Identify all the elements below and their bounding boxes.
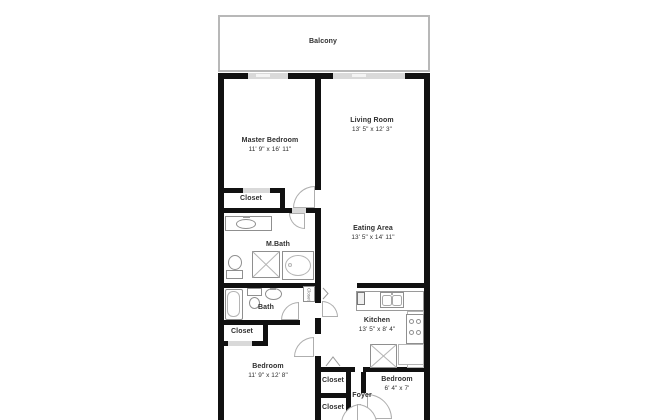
room-label-living-room: Living Room 13' 5" x 12' 3" xyxy=(317,117,427,134)
door-arc xyxy=(293,186,315,208)
sink-basin xyxy=(236,219,256,229)
door-arc xyxy=(322,301,338,317)
room-label-bath: Bath xyxy=(240,304,292,312)
room-dims: 11' 9" x 16' 11" xyxy=(215,146,325,154)
closet-label-master: Closet xyxy=(221,195,281,203)
room-label-eating-area: Eating Area 13' 5" x 14' 11" xyxy=(318,225,428,242)
closet-label-bath: Closet xyxy=(219,328,265,336)
room-name: Bedroom xyxy=(252,363,283,370)
closet-label-hall-upper: Closet xyxy=(315,377,351,385)
room-label-bedroom: Bedroom 11' 9" x 12' 8" xyxy=(213,363,323,380)
room-dims: 13' 5" x 12' 3" xyxy=(317,126,427,134)
dishwasher-icon xyxy=(357,292,365,305)
wall xyxy=(357,283,424,288)
bifold-door-icon xyxy=(325,356,341,367)
wall xyxy=(306,208,321,213)
toilet-tank xyxy=(226,270,243,279)
room-dims: 13' 5" x 14' 11" xyxy=(318,234,428,242)
burner-icon xyxy=(416,319,421,324)
sliding-door-panel xyxy=(352,74,366,77)
room-name: Eating Area xyxy=(353,225,393,232)
door-arc xyxy=(289,213,305,229)
balcony-label: Balcony xyxy=(268,38,378,46)
bathtub-basin xyxy=(227,291,240,317)
cabinet xyxy=(398,344,424,365)
wall xyxy=(315,318,321,334)
faucet-icon xyxy=(270,288,276,290)
wall xyxy=(218,320,300,325)
faucet-icon xyxy=(243,216,250,218)
wall xyxy=(252,341,268,346)
room-label-kitchen: Kitchen 13' 5" x 8' 4" xyxy=(342,317,412,334)
wall xyxy=(315,210,321,283)
refrigerator-icon xyxy=(370,344,397,368)
room-label-mbath: M.Bath xyxy=(252,241,304,249)
room-label-bedroom-small: Bedroom 6' 4" x 7' xyxy=(366,376,428,393)
room-label-master-bedroom: Master Bedroom 11' 9" x 16' 11" xyxy=(215,137,325,154)
wall xyxy=(218,188,243,193)
toilet-tank xyxy=(247,288,262,296)
room-name: Living Room xyxy=(350,117,394,124)
room-name: Kitchen xyxy=(364,317,390,324)
wall xyxy=(218,208,285,213)
room-label-foyer: Foyer xyxy=(340,392,384,400)
sliding-door-panel xyxy=(256,74,270,77)
sliding-door xyxy=(333,73,405,79)
closet-label-hall-lower: Closet xyxy=(315,404,351,412)
toilet-icon xyxy=(228,255,242,270)
burner-icon xyxy=(416,330,421,335)
wall xyxy=(288,73,333,79)
room-dims: 11' 9" x 12' 8" xyxy=(213,372,323,380)
door-opening xyxy=(243,188,270,193)
wall xyxy=(218,341,228,346)
bifold-door-icon xyxy=(322,287,330,300)
drain-icon xyxy=(288,263,292,267)
room-dims: 13' 5" x 8' 4" xyxy=(342,326,412,334)
kitchen-sink-icon xyxy=(380,292,404,308)
room-name: Bedroom xyxy=(381,376,412,383)
door-arc xyxy=(294,337,314,357)
room-name: Master Bedroom xyxy=(242,137,299,144)
shower-icon xyxy=(252,251,280,278)
linen-closet-label: Closet xyxy=(306,288,311,301)
floor-plan: Balcony xyxy=(0,0,650,420)
door-opening xyxy=(228,341,252,346)
